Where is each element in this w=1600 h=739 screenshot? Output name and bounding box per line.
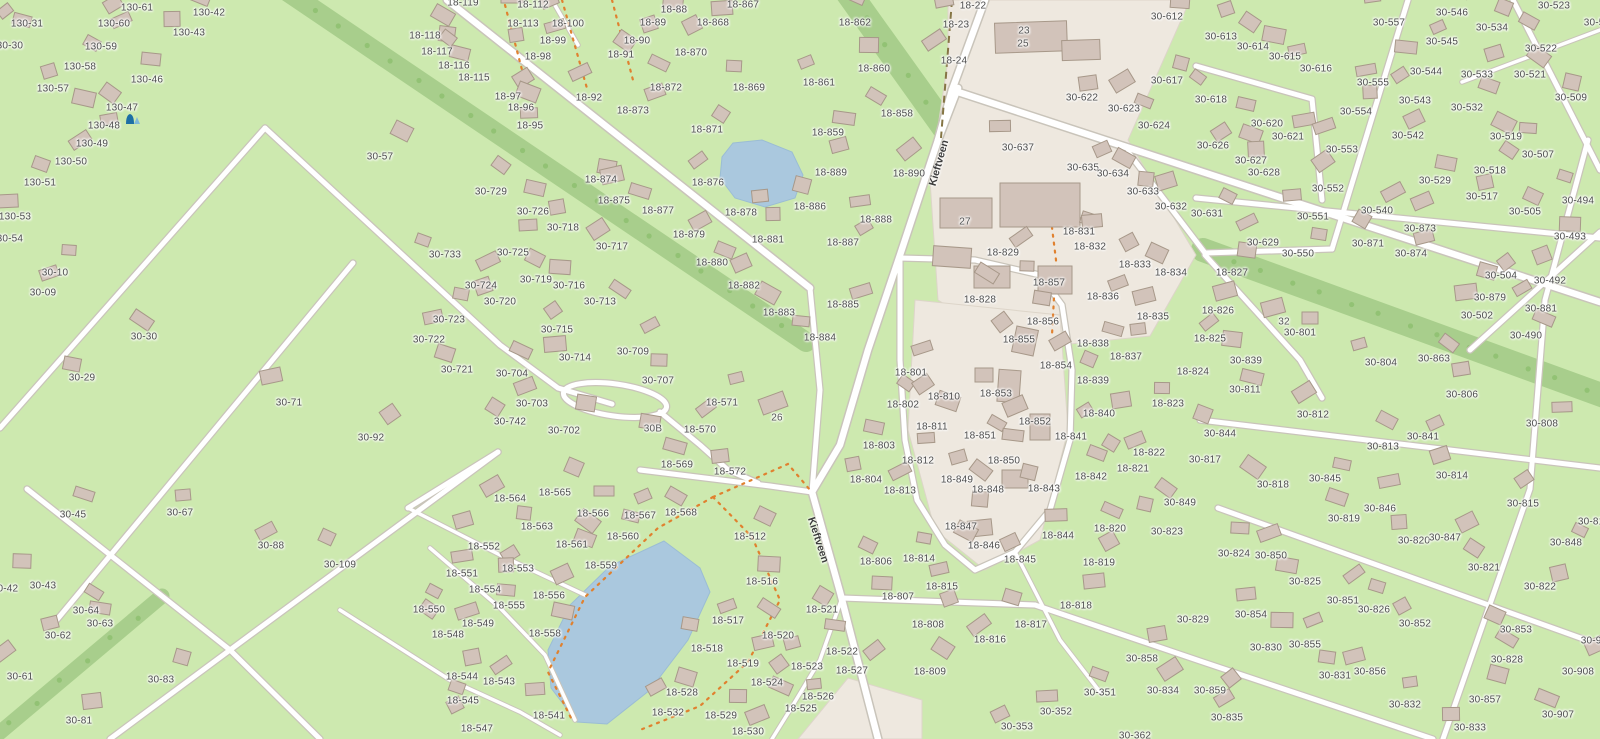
- parcel-label: 30-873: [1404, 224, 1436, 235]
- parcel-label: 130-48: [88, 121, 120, 132]
- parcel-label: 18-851: [964, 431, 996, 442]
- parcel-label: 18-550: [413, 605, 445, 616]
- parcel-label: 18-882: [728, 281, 760, 292]
- parcel-label: 30-45: [60, 510, 87, 521]
- parcel-label: 30-829: [1177, 615, 1209, 626]
- parcel-label: 18-877: [642, 206, 674, 217]
- parcel-label: 130-50: [55, 157, 87, 168]
- parcel-label: 18-118: [409, 31, 441, 42]
- parcel-label: 30-544: [1410, 67, 1442, 78]
- parcel-label: 30-844: [1204, 429, 1236, 440]
- parcel-label: 18-889: [815, 168, 847, 179]
- parcel-label: 18-113: [507, 19, 539, 30]
- parcel-label: 30-628: [1248, 168, 1280, 179]
- parcel-label: 30-847: [1429, 533, 1461, 544]
- parcel-label: 18-569: [661, 460, 693, 471]
- parcel-label: 18-887: [827, 238, 859, 249]
- parcel-label: 18-832: [1074, 242, 1106, 253]
- parcel-label: 30-853: [1500, 625, 1532, 636]
- parcel-label: 30-533: [1461, 70, 1493, 81]
- parcel-label: 18-823: [1152, 399, 1184, 410]
- parcel-label: 30-729: [475, 187, 507, 198]
- house-number-label: 26: [771, 413, 783, 424]
- parcel-label: 130-60: [98, 19, 130, 30]
- parcel-label: 30-804: [1365, 358, 1397, 369]
- parcel-label: 30-494: [1562, 196, 1594, 207]
- parcel-label: 30-817: [1189, 455, 1221, 466]
- parcel-label: 30-545: [1426, 37, 1458, 48]
- parcel-label: 18-553: [502, 564, 534, 575]
- parcel-label: 30-543: [1399, 96, 1431, 107]
- parcel-label: 18-92: [576, 93, 603, 104]
- parcel-label: 30-813: [1367, 442, 1399, 453]
- labels-layer: 130-31130-30130-61130-60130-42130-43130-…: [0, 0, 1600, 739]
- parcel-label: 18-884: [804, 333, 836, 344]
- parcel-label: 18-870: [675, 48, 707, 59]
- parcel-label: 18-545: [447, 696, 479, 707]
- parcel-label: 18-826: [1202, 306, 1234, 317]
- parcel-label: 30-825: [1289, 577, 1321, 588]
- parcel-label: 18-518: [691, 644, 723, 655]
- parcel-label: 30-709: [617, 347, 649, 358]
- parcel-label: 30-703: [516, 399, 548, 410]
- parcel-label: 18-822: [1133, 448, 1165, 459]
- parcel-label: 30-881: [1525, 304, 1557, 315]
- house-number-label: 25: [1017, 39, 1029, 50]
- parcel-label: 30-51: [1584, 18, 1600, 29]
- parcel-label: 30-821: [1468, 563, 1500, 574]
- parcel-label: 30-908: [1562, 667, 1594, 678]
- parcel-label: 18-99: [540, 36, 567, 47]
- parcel-label: 30-859: [1194, 686, 1226, 697]
- parcel-label: 18-812: [902, 456, 934, 467]
- parcel-label: 30-492: [1534, 276, 1566, 287]
- parcel-label: 30-518: [1474, 166, 1506, 177]
- parcel-label: 18-519: [727, 659, 759, 670]
- parcel-label: 18-526: [802, 692, 834, 703]
- parcel-label: 18-803: [863, 441, 895, 452]
- parcel-label: 30-523: [1538, 1, 1570, 12]
- parcel-label: 18-859: [812, 128, 844, 139]
- parcel-label: 30-546: [1436, 8, 1468, 19]
- parcel-label: 18-850: [988, 456, 1020, 467]
- parcel-label: 18-808: [912, 620, 944, 631]
- parcel-label: 30-63: [87, 619, 114, 630]
- parcel-label: 30-845: [1309, 474, 1341, 485]
- parcel-label: 18-809: [914, 667, 946, 678]
- parcel-label: 18-98: [525, 52, 552, 63]
- parcel-label: 18-841: [1055, 432, 1087, 443]
- parcel-label: 18-829: [987, 248, 1019, 259]
- parcel-label: 18-552: [468, 542, 500, 553]
- parcel-label: 30-820: [1398, 536, 1430, 547]
- parcel-label: 18-90: [624, 36, 651, 47]
- parcel-label: 18-807: [882, 592, 914, 603]
- parcel-label: 18-816: [974, 635, 1006, 646]
- parcel-label: 18-525: [785, 704, 817, 715]
- parcel-label: 18-842: [1075, 472, 1107, 483]
- parcel-label: 18-572: [714, 467, 746, 478]
- parcel-label: 30-557: [1373, 18, 1405, 29]
- parcel-label: 30-61: [7, 672, 34, 683]
- parcel-label: 18-549: [462, 619, 494, 630]
- parcel-label: 18-848: [972, 485, 1004, 496]
- parcel-label: 18-555: [493, 601, 525, 612]
- parcel-label: 30-352: [1040, 707, 1072, 718]
- parcel-label: 30-818: [1257, 480, 1289, 491]
- parcel-label: 30-832: [1389, 700, 1421, 711]
- parcel-label: 18-563: [521, 522, 553, 533]
- parcel-label: 18-844: [1042, 531, 1074, 542]
- parcel-label: 30-852: [1399, 619, 1431, 630]
- parcel-label: 18-827: [1216, 268, 1248, 279]
- parcel-label: 18-833: [1119, 260, 1151, 271]
- parcel-label: 18-517: [712, 616, 744, 627]
- parcel-label: 18-97: [495, 92, 522, 103]
- parcel-label: 30-30: [131, 332, 158, 343]
- parcel-label: 30-834: [1147, 686, 1179, 697]
- map-canvas[interactable]: 130-31130-30130-61130-60130-42130-43130-…: [0, 0, 1600, 739]
- parcel-label: 30-707: [642, 376, 674, 387]
- parcel-label: 30-540: [1361, 206, 1393, 217]
- parcel-label: 18-568: [665, 508, 697, 519]
- parcel-label: 18-528: [666, 688, 698, 699]
- parcel-label: 30-88: [258, 541, 285, 552]
- road-name-label: Kieftveen: [927, 139, 952, 188]
- parcel-label: 30-529: [1419, 176, 1451, 187]
- parcel-label: 30-722: [413, 335, 445, 346]
- parcel-label: 30-43: [30, 581, 57, 592]
- parcel-label: 18-835: [1137, 312, 1169, 323]
- parcel-label: 18-855: [1003, 335, 1035, 346]
- parcel-label: 30-863: [1418, 354, 1450, 365]
- parcel-label: 18-521: [806, 605, 838, 616]
- parcel-label: 30-831: [1319, 671, 1351, 682]
- parcel-label: 18-869: [733, 83, 765, 94]
- parcel-label: 30-517: [1466, 192, 1498, 203]
- house-number-label: 23: [1018, 26, 1030, 37]
- parcel-label: 18-516: [746, 577, 778, 588]
- parcel-label: 30-67: [167, 508, 194, 519]
- parcel-label: 18-24: [941, 56, 968, 67]
- parcel-label: 30-828: [1491, 655, 1523, 666]
- parcel-label: 30-725: [497, 248, 529, 259]
- parcel-label: 30-717: [596, 242, 628, 253]
- parcel-label: 18-831: [1063, 227, 1095, 238]
- parcel-label: 30-614: [1237, 42, 1269, 53]
- parcel-label: 30-635: [1067, 163, 1099, 174]
- parcel-label: 18-91: [608, 50, 635, 61]
- parcel-label: 18-96: [508, 103, 535, 114]
- parcel-label: 30-726: [517, 207, 549, 218]
- parcel-label: 130-53: [0, 212, 31, 223]
- parcel-label: 130-31: [11, 19, 43, 30]
- parcel-label: 130-42: [193, 8, 225, 19]
- parcel-label: 30-822: [1524, 582, 1556, 593]
- parcel-label: 30-62: [45, 631, 72, 642]
- parcel-label: 18-886: [794, 202, 826, 213]
- parcel-label: 30-626: [1197, 141, 1229, 152]
- parcel-label: 30-849: [1164, 498, 1196, 509]
- parcel-label: 30-92: [358, 433, 385, 444]
- parcel-label: 30-907: [1542, 710, 1574, 721]
- parcel-label: 18-845: [1004, 555, 1036, 566]
- parcel-label: 18-811: [916, 422, 948, 433]
- parcel-label: 30-29: [69, 373, 96, 384]
- parcel-label: 130-49: [76, 139, 108, 150]
- parcel-label: 18-843: [1028, 484, 1060, 495]
- parcel-label: 18-819: [1083, 558, 1115, 569]
- parcel-label: 30-534: [1476, 23, 1508, 34]
- parcel-label: 30-833: [1454, 723, 1486, 734]
- parcel-label: 18-872: [650, 83, 682, 94]
- parcel-label: 130-30: [0, 41, 23, 52]
- parcel-label: 18-846: [968, 541, 1000, 552]
- parcel-label: 18-815: [926, 582, 958, 593]
- parcel-label: 30-490: [1510, 331, 1542, 342]
- parcel-label: 18-570: [684, 425, 716, 436]
- parcel-label: 130-57: [37, 84, 69, 95]
- shelter-icon: [125, 112, 141, 130]
- parcel-label: 18-548: [432, 630, 464, 641]
- parcel-label: 18-116: [438, 61, 470, 72]
- parcel-label: 30-613: [1205, 32, 1237, 43]
- parcel-label: 30-718: [547, 223, 579, 234]
- parcel-label: 18-867: [727, 0, 759, 11]
- parcel-label: 18-871: [691, 125, 723, 136]
- parcel-label: 130-61: [121, 3, 153, 14]
- parcel-label: 18-880: [696, 258, 728, 269]
- parcel-label: 30-857: [1469, 695, 1501, 706]
- parcel-label: 30-848: [1550, 538, 1582, 549]
- parcel-label: 18-852: [1019, 417, 1051, 428]
- parcel-label: 30-81: [66, 716, 93, 727]
- parcel-label: 30-109: [324, 560, 356, 571]
- parcel-label: 30-702: [548, 426, 580, 437]
- house-number-label: 27: [959, 217, 971, 228]
- parcel-label: 18-840: [1083, 409, 1115, 420]
- parcel-label: 30-519: [1490, 132, 1522, 143]
- parcel-label: 30-715: [541, 325, 573, 336]
- parcel-label: 18-802: [887, 400, 919, 411]
- parcel-label: 18-804: [850, 475, 882, 486]
- parcel-label: 18-878: [725, 208, 757, 219]
- parcel-label: 18-821: [1117, 464, 1149, 475]
- parcel-label: 30-632: [1155, 202, 1187, 213]
- parcel-label: 18-881: [752, 235, 784, 246]
- parcel-label: 18-565: [539, 488, 571, 499]
- parcel-label: 30-620: [1251, 119, 1283, 130]
- parcel-label: 18-560: [607, 532, 639, 543]
- parcel-label: 30-353: [1001, 722, 1033, 733]
- parcel-label: 30-507: [1522, 150, 1554, 161]
- parcel-label: 18-828: [964, 295, 996, 306]
- parcel-label: 30-850: [1255, 551, 1287, 562]
- parcel-label: 30-493: [1554, 232, 1586, 243]
- parcel-label: 18-112: [517, 0, 549, 11]
- parcel-label: 18-837: [1110, 352, 1142, 363]
- parcel-label: 30-633: [1127, 187, 1159, 198]
- parcel-label: 18-856: [1027, 317, 1059, 328]
- parcel-label: 18-541: [533, 711, 565, 722]
- parcel-label: 30-554: [1340, 107, 1372, 118]
- parcel-label: 30-808: [1526, 419, 1558, 430]
- parcel-label: 18-115: [458, 73, 490, 84]
- parcel-label: 30-627: [1235, 156, 1267, 167]
- parcel-label: 30-615: [1269, 52, 1301, 63]
- parcel-label: 30-532: [1451, 103, 1483, 114]
- parcel-label: 18-567: [624, 511, 656, 522]
- parcel-label: 30-612: [1151, 12, 1183, 23]
- parcel-label: 18-564: [494, 494, 526, 505]
- parcel-label: 18-559: [585, 561, 617, 572]
- parcel-label: 18-119: [447, 0, 479, 9]
- parcel-label: 30-814: [1436, 471, 1468, 482]
- parcel-label: 18-876: [692, 178, 724, 189]
- parcel-label: 30-505: [1509, 207, 1541, 218]
- parcel-label: 18-847: [945, 522, 977, 533]
- road-name-label: Kieftveen: [805, 516, 831, 565]
- parcel-label: 18-861: [803, 78, 835, 89]
- parcel-label: 18-879: [673, 230, 705, 241]
- parcel-label: 130-54: [0, 234, 23, 245]
- parcel-label: 18-806: [860, 557, 892, 568]
- parcel-label: 30-622: [1066, 93, 1098, 104]
- parcel-label: 30-856: [1354, 667, 1386, 678]
- parcel-label: 18-524: [751, 678, 783, 689]
- parcel-label: 18-838: [1077, 339, 1109, 350]
- parcel-label: 18-117: [421, 47, 453, 58]
- parcel-label: 18-836: [1087, 292, 1119, 303]
- parcel-label: 18-875: [598, 196, 630, 207]
- parcel-label: 30-502: [1461, 311, 1493, 322]
- parcel-label: 30-871: [1352, 239, 1384, 250]
- parcel-label: 18-810: [928, 392, 960, 403]
- parcel-label: 18-834: [1155, 268, 1187, 279]
- parcel-label: 30-855: [1289, 640, 1321, 651]
- parcel-label: 30-624: [1138, 121, 1170, 132]
- parcel-label: 30-629: [1247, 238, 1279, 249]
- parcel-label: 30-617: [1151, 76, 1183, 87]
- parcel-label: 30-10: [42, 268, 69, 279]
- parcel-label: 18-551: [446, 569, 478, 580]
- parcel-label: 18-839: [1077, 376, 1109, 387]
- parcel-label: 130-59: [85, 42, 117, 53]
- parcel-label: 30-621: [1272, 132, 1304, 143]
- parcel-label: 18-890: [893, 169, 925, 180]
- parcel-label: 18-556: [533, 591, 565, 602]
- parcel-label: 18-547: [461, 724, 493, 735]
- parcel-label: 30-351: [1084, 688, 1116, 699]
- parcel-label: 30-550: [1282, 249, 1314, 260]
- parcel-label: 18-100: [552, 19, 584, 30]
- parcel-label: 18-862: [839, 18, 871, 29]
- parcel-label: 18-530: [732, 727, 764, 738]
- parcel-label: 18-885: [827, 300, 859, 311]
- parcel-label: 30-721: [441, 365, 473, 376]
- parcel-label: 18-520: [762, 631, 794, 642]
- parcel-label: 30-874: [1395, 249, 1427, 260]
- parcel-label: 30-714: [559, 353, 591, 364]
- parcel-label: 18-532: [652, 708, 684, 719]
- parcel-label: 30-542: [1392, 131, 1424, 142]
- parcel-label: 18-860: [858, 64, 890, 75]
- parcel-label: 18-888: [860, 215, 892, 226]
- parcel-label: 18-512: [734, 532, 766, 543]
- parcel-label: 30-811: [1229, 385, 1261, 396]
- parcel-label: 18-868: [697, 18, 729, 29]
- parcel-label: 30-823: [1151, 527, 1183, 538]
- parcel-label: 30-362: [1119, 731, 1151, 739]
- parcel-label: 30-724: [465, 281, 497, 292]
- parcel-label: 30-42: [0, 584, 18, 595]
- parcel-label: 30-57: [367, 152, 394, 163]
- parcel-label: 30-631: [1191, 209, 1223, 220]
- parcel-label: 30-815: [1507, 499, 1539, 510]
- parcel-label: 30-704: [496, 369, 528, 380]
- parcel-label: 18-571: [706, 398, 738, 409]
- parcel-label: 18-522: [826, 647, 858, 658]
- house-number-label: 32: [1278, 317, 1290, 328]
- parcel-label: 30-733: [429, 250, 461, 261]
- parcel-label: 18-801: [895, 368, 927, 379]
- parcel-label: 30-83: [148, 675, 175, 686]
- parcel-label: 30-71: [276, 398, 303, 409]
- parcel-label: 30-723: [433, 315, 465, 326]
- parcel-label: 30-509: [1555, 93, 1587, 104]
- parcel-label: 18-814: [903, 554, 935, 565]
- parcel-label: 18-853: [980, 389, 1012, 400]
- parcel-label: 30-826: [1358, 605, 1390, 616]
- parcel-label: 30-64: [73, 606, 100, 617]
- parcel-label: 130-46: [131, 75, 163, 86]
- parcel-label: 18-820: [1094, 524, 1126, 535]
- parcel-label: 18-22: [960, 1, 987, 12]
- parcel-label: 18-825: [1194, 334, 1226, 345]
- parcel-label: 30-858: [1126, 654, 1158, 665]
- parcel-label: 30-521: [1514, 70, 1546, 81]
- parcel-label: 18-88: [661, 5, 688, 16]
- parcel-label: 18-566: [577, 509, 609, 520]
- parcel-label: 30-846: [1364, 504, 1396, 515]
- parcel-label: 30-555: [1357, 78, 1389, 89]
- parcel-label: 30-553: [1326, 145, 1358, 156]
- parcel-label: 130-43: [173, 28, 205, 39]
- house-number-label: 30B: [644, 424, 662, 435]
- parcel-label: 18-23: [943, 20, 970, 31]
- parcel-label: 30-716: [553, 281, 585, 292]
- parcel-label: 30-841: [1407, 432, 1439, 443]
- parcel-label: 30-09: [30, 288, 57, 299]
- parcel-label: 30-552: [1312, 184, 1344, 195]
- parcel-label: 130-51: [24, 178, 56, 189]
- parcel-label: 30-819: [1328, 514, 1360, 525]
- parcel-label: 30-91: [1581, 636, 1600, 647]
- parcel-label: 18-561: [556, 540, 588, 551]
- parcel-label: 18-873: [617, 106, 649, 117]
- parcel-label: 18-854: [1040, 361, 1072, 372]
- parcel-label: 30-637: [1002, 143, 1034, 154]
- parcel-label: 30-634: [1097, 169, 1129, 180]
- parcel-label: 18-523: [791, 662, 823, 673]
- parcel-label: 30-623: [1108, 104, 1140, 115]
- parcel-label: 30-522: [1525, 44, 1557, 55]
- parcel-label: 18-824: [1177, 367, 1209, 378]
- parcel-label: 18-95: [517, 121, 544, 132]
- parcel-label: 30-839: [1230, 356, 1262, 367]
- parcel-label: 30-504: [1485, 271, 1517, 282]
- parcel-label: 18-818: [1060, 601, 1092, 612]
